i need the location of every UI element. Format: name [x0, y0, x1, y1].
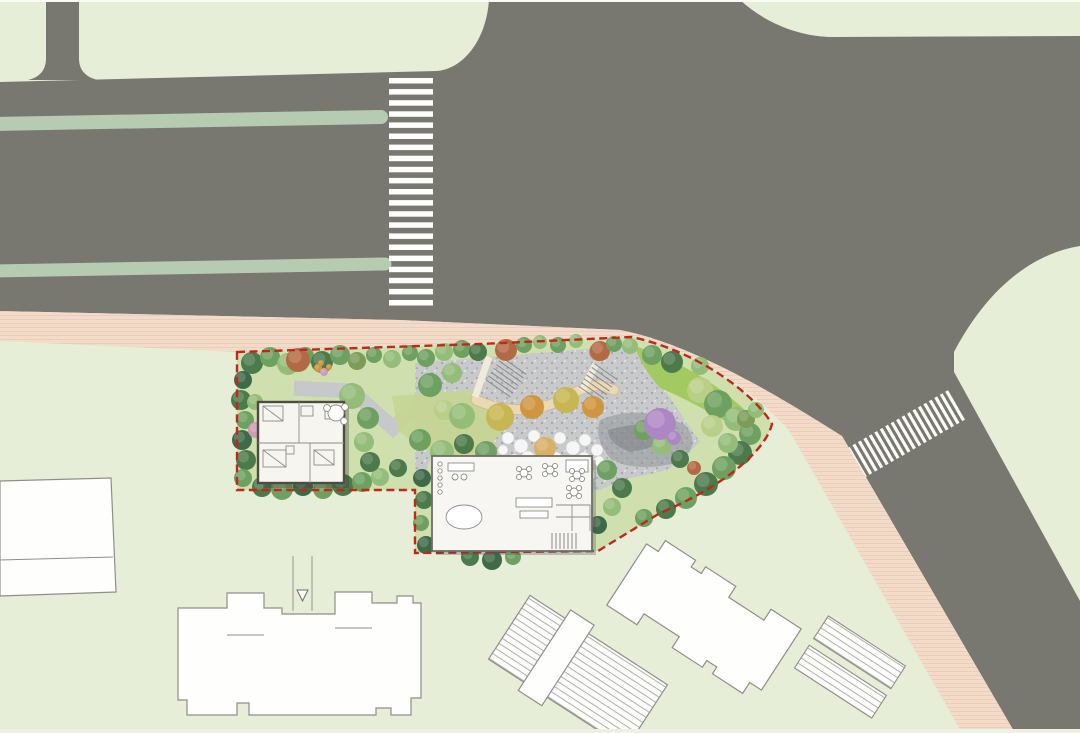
tree-canopy-highlight	[368, 348, 377, 357]
cafe-chair	[542, 471, 547, 476]
crosswalk-stripe	[389, 145, 433, 151]
tree-canopy-highlight	[342, 385, 356, 399]
tree-canopy-highlight	[714, 458, 727, 471]
frame-top	[0, 0, 1080, 2]
cafe-chair	[566, 493, 571, 498]
site-plan-canvas	[0, 0, 1080, 733]
crosswalk-stripe	[389, 189, 433, 195]
cafe-chair	[516, 474, 521, 479]
cafe-chair	[569, 476, 574, 481]
cafe-chair	[516, 466, 521, 471]
crosswalk-stripe	[389, 200, 433, 206]
paving-circle	[554, 432, 566, 444]
cafe-chair	[526, 474, 531, 479]
tree-canopy-highlight	[455, 341, 465, 351]
tree-canopy-highlight	[534, 336, 542, 344]
tree-canopy-highlight	[663, 353, 675, 365]
tree-canopy-highlight	[321, 369, 325, 373]
north-crosswalk	[389, 78, 433, 306]
tree-canopy-highlight	[599, 462, 610, 473]
tree-canopy-highlight	[391, 460, 401, 470]
tree-canopy-highlight	[315, 365, 319, 369]
crosswalk-stripe	[389, 289, 433, 295]
crosswalk-stripe	[389, 167, 433, 173]
tree-canopy-highlight	[288, 350, 301, 363]
cafe-chair	[526, 466, 531, 471]
tree-canopy-highlight	[703, 417, 715, 429]
clubhouse-stair	[552, 533, 576, 549]
tree-canopy-highlight	[436, 402, 447, 413]
tree-canopy-highlight	[419, 537, 429, 547]
tree-canopy-highlight	[452, 405, 466, 419]
tree-canopy-highlight	[688, 462, 696, 470]
cafe-chair	[579, 468, 584, 473]
cafe-chair	[576, 493, 581, 498]
crosswalk-stripe	[389, 89, 433, 95]
cafe-chair	[579, 476, 584, 481]
crosswalk-stripe	[389, 222, 433, 228]
tree-canopy-highlight	[489, 405, 504, 420]
tree-canopy-highlight	[668, 432, 676, 440]
tree-canopy-highlight	[707, 392, 722, 407]
tree-canopy-highlight	[249, 395, 258, 404]
tree-canopy-highlight	[644, 347, 655, 358]
tree-canopy-highlight	[243, 354, 255, 366]
tree-canopy-highlight	[477, 443, 489, 455]
tree-canopy-highlight	[614, 480, 625, 491]
tree-canopy-highlight	[444, 365, 455, 376]
tree-canopy-highlight	[327, 364, 330, 367]
cafe-chair	[566, 485, 571, 490]
site-plan-image	[0, 0, 1080, 733]
cafe-chair	[552, 463, 557, 468]
paving-circle	[579, 434, 591, 446]
tree-canopy-highlight	[605, 499, 615, 509]
tree-canopy-highlight	[238, 452, 249, 463]
median-strip	[0, 264, 385, 271]
tree-canopy-highlight	[319, 360, 322, 363]
clubhouse-building	[432, 456, 596, 555]
tree-canopy-highlight	[637, 510, 647, 520]
paving-circle	[502, 432, 514, 444]
tree-canopy-highlight	[356, 434, 367, 445]
crosswalk-stripe	[389, 278, 433, 284]
tree-canopy-highlight	[354, 474, 365, 485]
tree-canopy-highlight	[592, 343, 603, 354]
tree-canopy-highlight	[522, 397, 535, 410]
cafe-chair	[569, 468, 574, 473]
tree-canopy-highlight	[432, 442, 445, 455]
cafe-chair	[576, 485, 581, 490]
crosswalk-stripe	[389, 134, 433, 140]
tree-canopy-highlight	[456, 436, 467, 447]
paving-circle	[566, 441, 580, 455]
tree-canopy-highlight	[385, 351, 395, 361]
tree-canopy-highlight	[647, 410, 665, 428]
paving-circle	[514, 439, 528, 453]
tree-canopy-highlight	[415, 470, 425, 480]
crosswalk-stripe	[389, 300, 433, 306]
tree-canopy-highlight	[362, 454, 373, 465]
tree-canopy-highlight	[419, 350, 429, 360]
tree-canopy-highlight	[720, 435, 731, 446]
tree-canopy-highlight	[238, 412, 248, 422]
crosswalk-stripe	[389, 178, 433, 184]
crosswalk-stripe	[389, 100, 433, 106]
crosswalk-stripe	[389, 233, 433, 239]
tree-canopy-highlight	[411, 431, 423, 443]
tree-canopy-highlight	[584, 398, 596, 410]
tree-canopy-highlight	[624, 339, 633, 348]
tree-canopy-highlight	[234, 432, 245, 443]
cafe-chair	[542, 463, 547, 468]
paving-circle	[591, 444, 603, 456]
show-flat-building	[258, 402, 349, 488]
crosswalk-stripe	[389, 156, 433, 162]
cafe-chair	[552, 471, 557, 476]
crosswalk-stripe	[389, 256, 433, 262]
tree-canopy-highlight	[536, 439, 548, 451]
crosswalk-stripe	[389, 111, 433, 117]
tree-canopy-highlight	[696, 474, 709, 487]
west-edge-building	[0, 478, 116, 596]
tree-canopy-highlight	[417, 492, 427, 502]
tree-canopy-highlight	[420, 375, 433, 388]
tree-canopy-highlight	[359, 409, 371, 421]
crosswalk-stripe	[389, 78, 433, 84]
tree-canopy-highlight	[673, 451, 683, 461]
median-strip	[0, 117, 381, 124]
frame-bottom	[0, 729, 1080, 733]
crosswalk-stripe	[389, 122, 433, 128]
tree-canopy-highlight	[690, 379, 704, 393]
crosswalk-stripe	[389, 267, 433, 273]
tree-canopy-highlight	[739, 411, 749, 421]
tree-canopy-highlight	[350, 353, 360, 363]
paving-circle	[498, 445, 508, 455]
tree-canopy-highlight	[556, 389, 570, 403]
crosswalk-stripe	[389, 211, 433, 217]
tree-canopy-highlight	[471, 344, 481, 354]
crosswalk-stripe	[389, 245, 433, 251]
tree-canopy-highlight	[233, 392, 244, 403]
